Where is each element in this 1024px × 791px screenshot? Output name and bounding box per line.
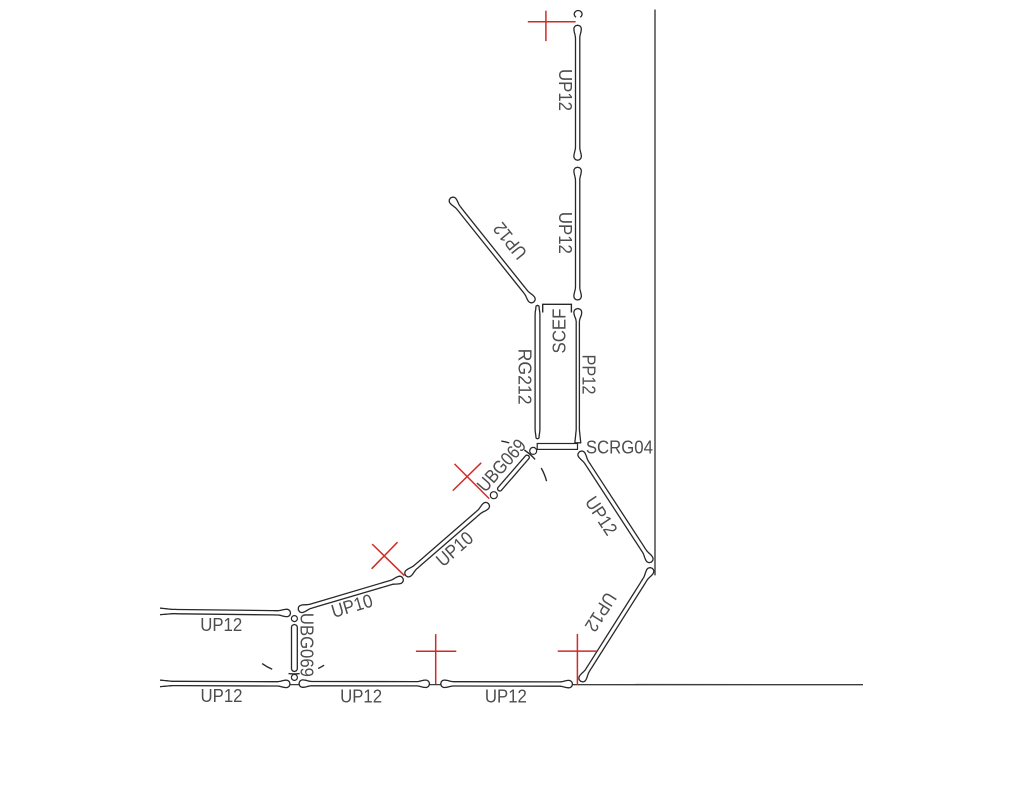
svg-text:UP12: UP12 xyxy=(201,685,243,706)
svg-text:SCRG04: SCRG04 xyxy=(586,438,653,458)
svg-text:UP12: UP12 xyxy=(555,69,576,111)
svg-text:SCEF: SCEF xyxy=(548,309,569,354)
svg-text:UP12: UP12 xyxy=(581,492,622,539)
svg-text:RG212: RG212 xyxy=(515,349,536,405)
svg-text:UP12: UP12 xyxy=(555,212,576,254)
svg-text:UP12: UP12 xyxy=(340,685,382,706)
svg-text:UP10: UP10 xyxy=(432,527,477,570)
svg-text:UBG069: UBG069 xyxy=(296,613,317,677)
svg-text:UP12: UP12 xyxy=(200,614,242,635)
svg-text:UP12: UP12 xyxy=(485,686,527,707)
svg-text:PP12: PP12 xyxy=(578,355,599,395)
svg-text:UP10: UP10 xyxy=(329,590,375,622)
